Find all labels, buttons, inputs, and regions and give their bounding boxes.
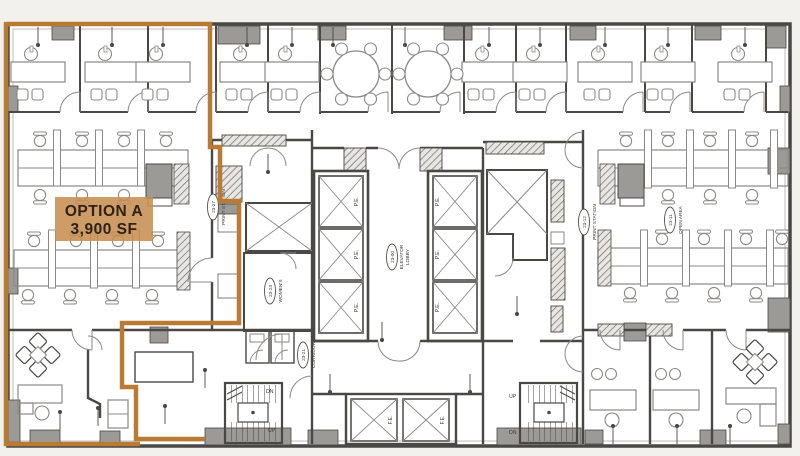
elevator-label: P.E. [435,249,441,259]
room-name: PRINT STATION [592,204,598,240]
floor-plan-page: P.E. P.E. P.E. P.E. P.E. P.E. [0,0,800,456]
room-number: 23-11 [668,214,673,226]
room-name: OPEN AREA [678,205,684,234]
room-number: 23-24 [268,285,273,297]
freight-elevator-label: F.E. [440,416,446,425]
room-name: LOBBY [405,248,411,265]
elevator-label: P.E. [435,196,441,206]
stair-direction-label: UP [509,394,517,400]
room-name: ELEVATOR [399,244,405,269]
option-title: OPTION A [65,203,143,220]
elevator-label: P.E. [354,302,360,312]
room-number: 23-21 [301,349,306,361]
room-number: 23-12 [582,216,587,228]
room-number: 23-27 [211,201,216,213]
stair-direction-label: DN [266,389,274,395]
freight-elevator-label: F.E. [388,416,394,425]
room-tag-womens: 23-24 WOMEN'S [265,278,285,304]
elevator-label: P.E. [354,249,360,259]
room-name: WOMEN'S [278,279,284,302]
elevator-label: P.E. [354,196,360,206]
stair-direction-label: DN [509,430,517,436]
room-number: 23-00 [390,251,395,263]
floor-plan-image: P.E. P.E. P.E. P.E. P.E. P.E. [0,0,800,456]
option-area: 3,900 SF [71,221,138,238]
option-a-label: OPTION A 3,900 SF [55,197,153,241]
stair-direction-label: UP [268,428,276,434]
elevator-label: P.E. [435,302,441,312]
room-name: CORRIDOR [311,341,317,368]
